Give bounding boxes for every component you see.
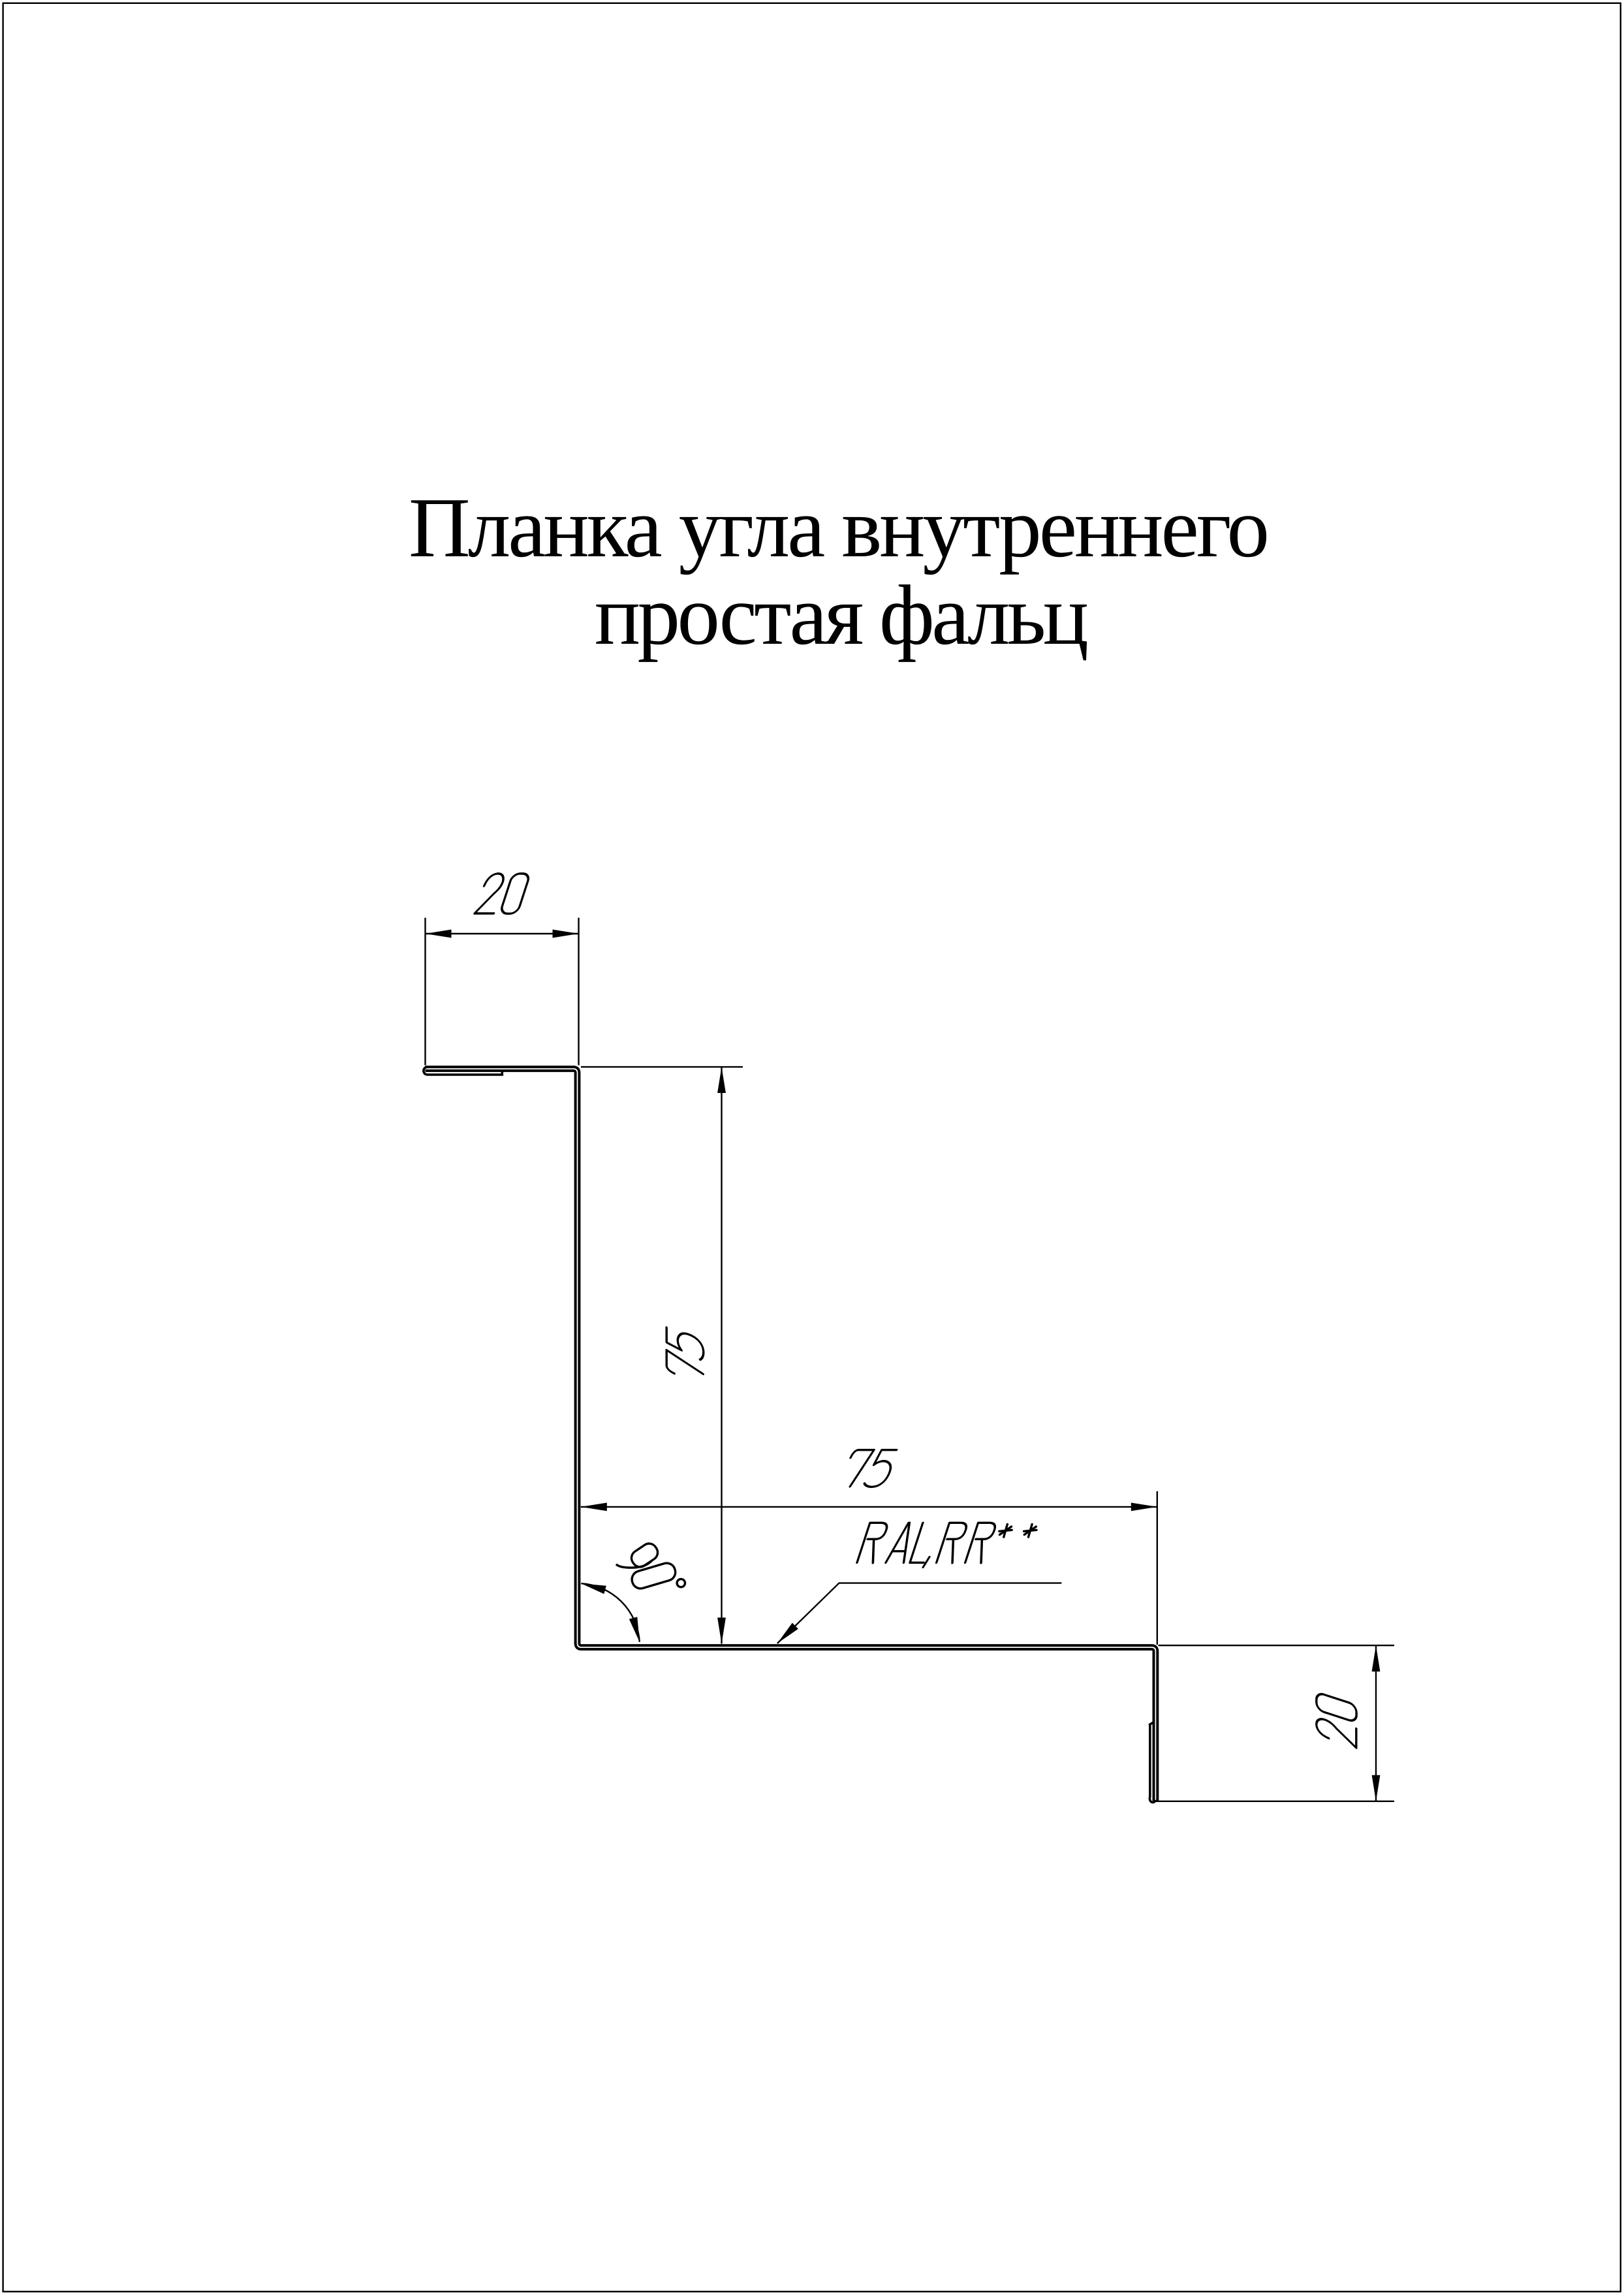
svg-text:простая фальц: простая фальц — [595, 568, 1089, 663]
svg-text:Планка угла внутреннего: Планка угла внутреннего — [409, 481, 1270, 575]
